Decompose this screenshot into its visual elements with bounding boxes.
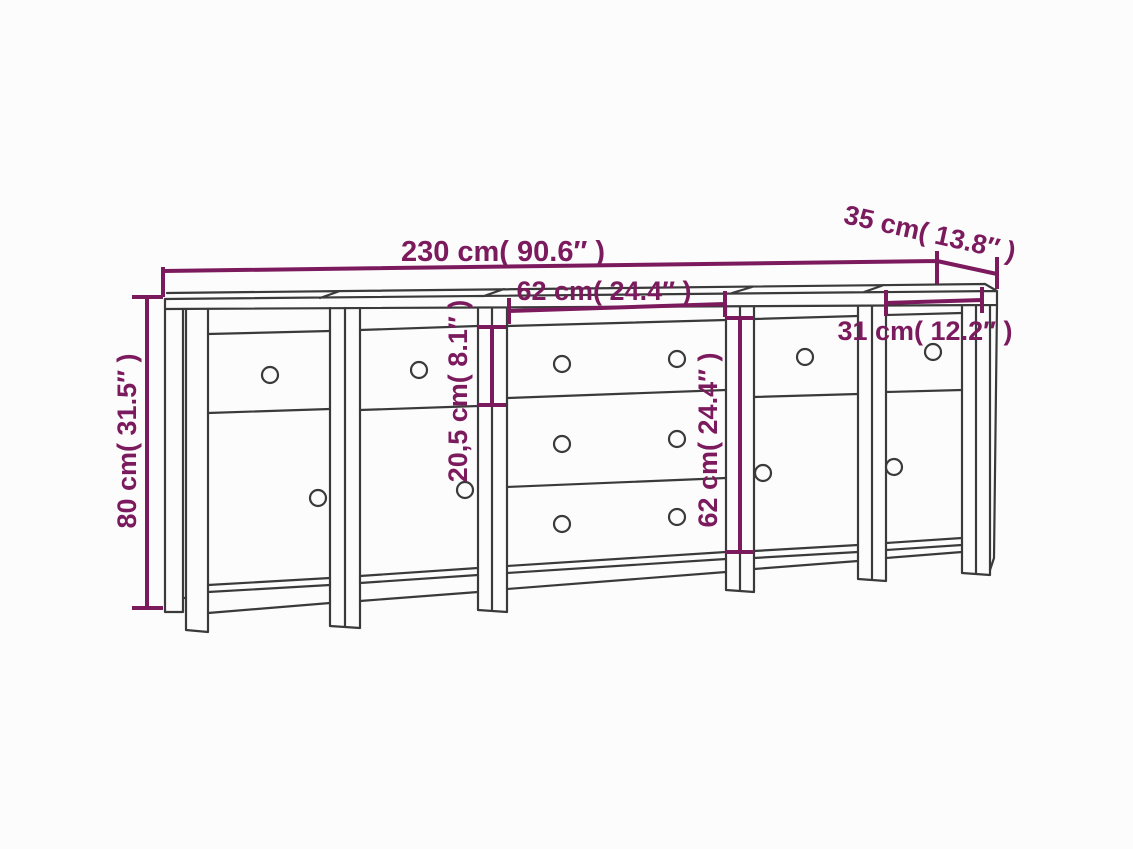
- dim-drawer-stack-height-label: 62 cm( 24.4″ ): [693, 352, 723, 527]
- product-dimension-diagram: 230 cm( 90.6″ ) 35 cm( 13.8″ ) 62 cm( 24…: [0, 0, 1133, 849]
- knob-door-2: [457, 482, 473, 498]
- knob-door-5: [886, 459, 902, 475]
- dim-total-width-label: 230 cm( 90.6″ ): [401, 236, 605, 268]
- knob-mid-drawer-1-right: [669, 351, 685, 367]
- dim-total-height-label: 80 cm( 31.5″ ): [112, 353, 142, 528]
- knob-drawer-2: [411, 362, 427, 378]
- knob-mid-drawer-3-left: [554, 516, 570, 532]
- knob-drawer-5: [925, 344, 941, 360]
- knob-mid-drawer-2-left: [554, 436, 570, 452]
- dim-drawer-height-label: 20,5 cm( 8.1″ ): [443, 300, 473, 483]
- knob-mid-drawer-2-right: [669, 431, 685, 447]
- knob-mid-drawer-3-right: [669, 509, 685, 525]
- dim-center-width-label: 62 cm( 24.4″ ): [516, 276, 691, 306]
- knob-drawer-4: [797, 349, 813, 365]
- knob-door-4: [755, 465, 771, 481]
- knob-mid-drawer-1-left: [554, 356, 570, 372]
- knob-door-1: [310, 490, 326, 506]
- dim-side-width-label: 31 cm( 12.2″ ): [837, 316, 1012, 346]
- knob-drawer-1: [262, 367, 278, 383]
